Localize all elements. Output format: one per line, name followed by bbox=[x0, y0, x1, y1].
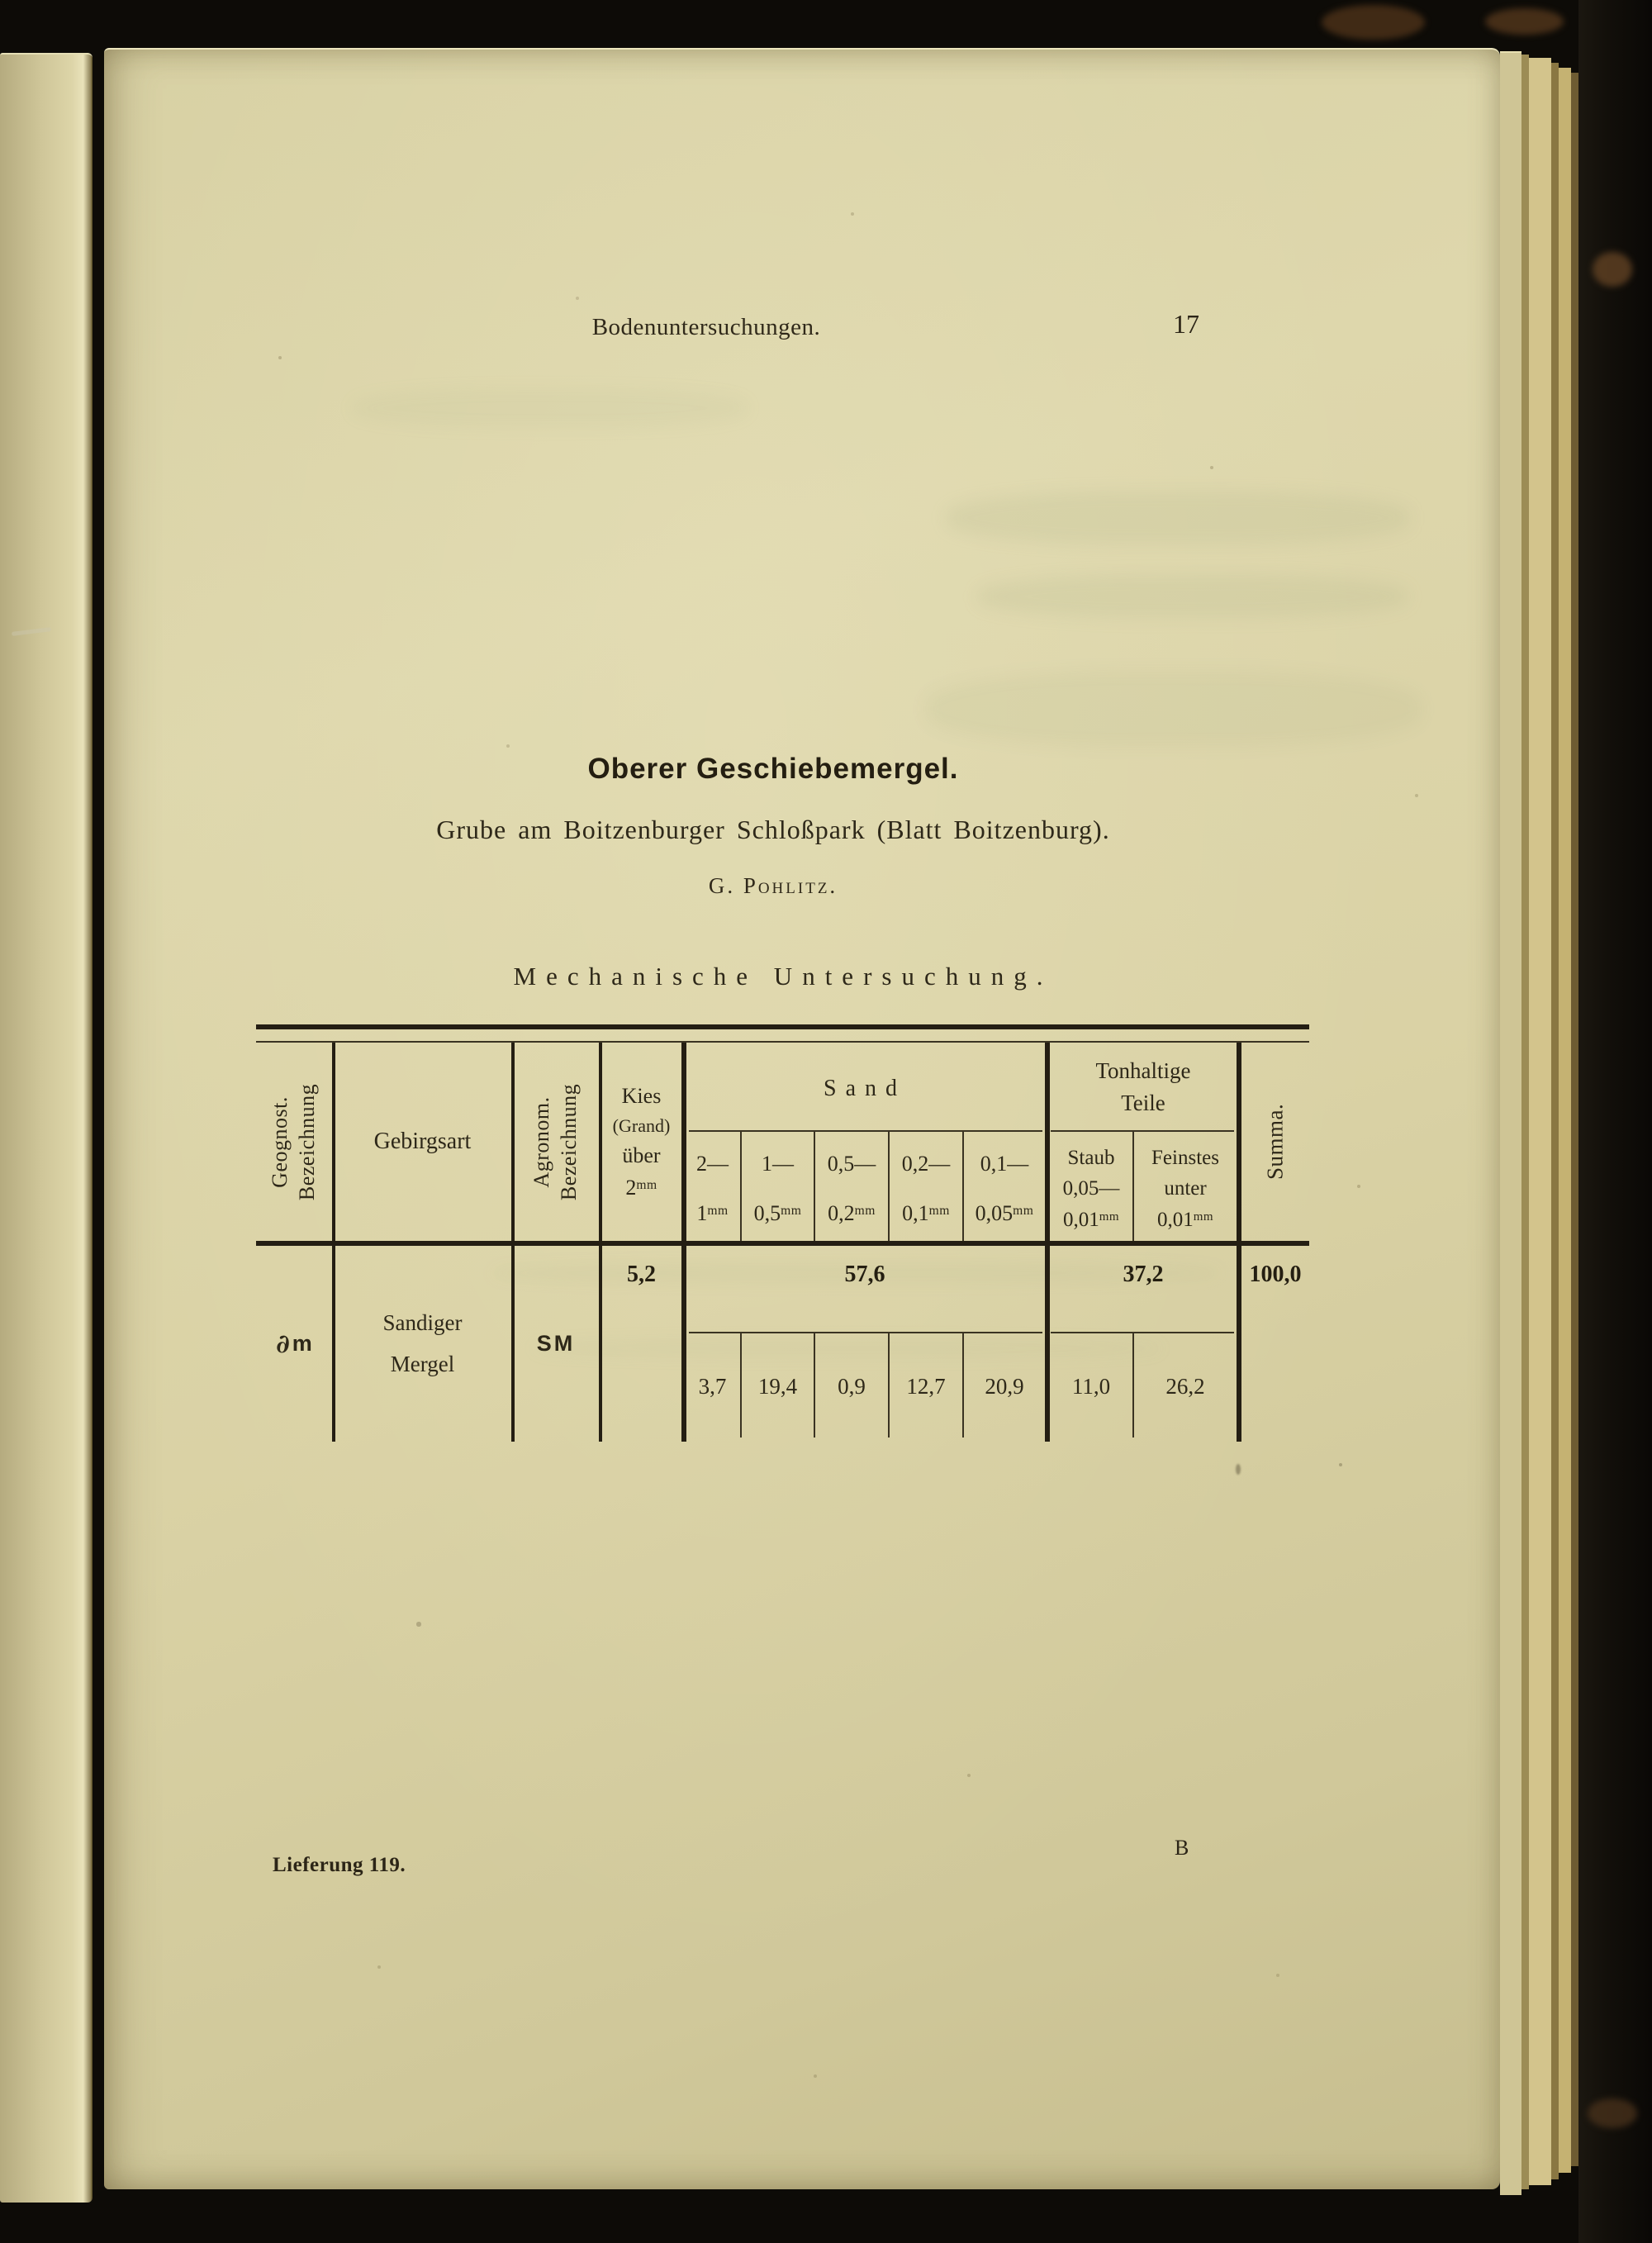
cell-geognost-symbol: ∂m bbox=[256, 1246, 332, 1442]
cell-staub-value: 11,0 bbox=[1051, 1367, 1131, 1405]
range-to: 0,5mm bbox=[754, 1189, 802, 1238]
header-gebirgsart: Gebirgsart bbox=[335, 1043, 510, 1241]
show-through-stain bbox=[947, 492, 1409, 544]
gebirgsart-line2: Mergel bbox=[391, 1344, 454, 1385]
kies-value: 5,2 bbox=[627, 1262, 656, 1288]
book-cover-right bbox=[1578, 0, 1652, 2243]
staub-line1: Staub bbox=[1068, 1143, 1115, 1174]
header-sand-group: Sand bbox=[686, 1062, 1043, 1116]
sand-value: 20,9 bbox=[985, 1374, 1023, 1399]
header-tonhaltige-group: Tonhaltige Teile bbox=[1051, 1051, 1235, 1124]
page-edge-stack bbox=[1521, 55, 1529, 2189]
page-subtitle: Grube am Boitzenburger Schloßpark (Blatt… bbox=[436, 815, 1109, 845]
page-edge-stack bbox=[1529, 58, 1551, 2185]
stray-ink-mark bbox=[1236, 1464, 1241, 1475]
show-through-stain bbox=[978, 575, 1408, 618]
page-number: 17 bbox=[1173, 309, 1199, 340]
leather-damage-spot bbox=[1322, 5, 1425, 40]
feinstes-line3: 0,01mm bbox=[1157, 1205, 1213, 1236]
sand-sub-divider bbox=[814, 1132, 815, 1241]
table-rule-top-thick bbox=[256, 1024, 1309, 1029]
leather-damage-spot bbox=[1588, 2098, 1637, 2128]
page-edge-stack bbox=[1559, 68, 1571, 2173]
paper-specks bbox=[104, 50, 106, 51]
cell-sand-value-2: 19,4 bbox=[743, 1367, 812, 1405]
show-through-stain bbox=[352, 388, 748, 428]
running-header: Bodenuntersuchungen. bbox=[592, 314, 821, 341]
kies-limit-unit: mm bbox=[636, 1178, 657, 1192]
range-from: 0,5— bbox=[828, 1139, 876, 1189]
page-title: Oberer Geschiebemergel. bbox=[587, 753, 958, 786]
range-to: 0,05mm bbox=[976, 1189, 1034, 1238]
cell-ton-total: 37,2 bbox=[1051, 1258, 1235, 1291]
header-ton-line1: Tonhaltige bbox=[1095, 1055, 1190, 1087]
sand-sub-divider bbox=[740, 1132, 742, 1241]
header-kies-line2: (Grand) bbox=[613, 1112, 671, 1139]
summa-value: 100,0 bbox=[1250, 1262, 1302, 1288]
sand-total-value: 57,6 bbox=[845, 1262, 885, 1288]
footer-edition-note: Lieferung 119. bbox=[273, 1854, 406, 1877]
header-summa-label: Summa. bbox=[1261, 1104, 1289, 1180]
header-sand-range-4: 0,2— 0,1mm bbox=[891, 1140, 961, 1238]
header-geognost-line2: Bezeichnung bbox=[294, 1083, 321, 1200]
header-kies: Kies (Grand) über 2mm bbox=[602, 1043, 681, 1241]
staub-value: 11,0 bbox=[1072, 1374, 1110, 1399]
header-geognost: Geognost. Bezeichnung bbox=[256, 1043, 332, 1241]
cell-agronom: SM bbox=[515, 1246, 597, 1442]
book-page: Bodenuntersuchungen. 17 Oberer Geschiebe… bbox=[104, 48, 1500, 2189]
leather-damage-spot bbox=[1485, 8, 1564, 35]
kies-limit-number: 2 bbox=[625, 1176, 636, 1200]
header-staub: Staub 0,05— 0,01mm bbox=[1051, 1138, 1131, 1239]
range-to: 0,2mm bbox=[828, 1189, 876, 1238]
header-ton-line2: Teile bbox=[1121, 1087, 1165, 1119]
header-kies-line3: über bbox=[622, 1139, 660, 1171]
header-kies-line4: 2mm bbox=[625, 1171, 657, 1204]
signature-mark: B bbox=[1175, 1836, 1189, 1860]
ton-group-underline bbox=[1051, 1130, 1234, 1132]
cell-sand-total: 57,6 bbox=[686, 1258, 1043, 1291]
header-sand-range-1: 2— 1mm bbox=[686, 1140, 738, 1238]
gebirgsart-line1: Sandiger bbox=[383, 1303, 463, 1344]
sand-sub-divider bbox=[888, 1332, 890, 1438]
sand-value: 3,7 bbox=[699, 1374, 727, 1399]
ton-sub-divider bbox=[1132, 1132, 1134, 1241]
geology-symbol-partial: ∂ bbox=[276, 1329, 290, 1359]
ton-subtotal-divider bbox=[1051, 1332, 1234, 1333]
sand-sub-divider bbox=[814, 1332, 815, 1438]
mechanical-analysis-table: Geognost. Bezeichnung Gebirgsart Agronom… bbox=[256, 1024, 1309, 1447]
geology-symbol-letter: m bbox=[292, 1331, 312, 1357]
page-edge-stack bbox=[1571, 73, 1578, 2166]
sand-value: 0,9 bbox=[838, 1374, 866, 1399]
ton-total-value: 37,2 bbox=[1123, 1262, 1164, 1288]
sand-group-underline bbox=[689, 1130, 1042, 1132]
author-name: G. Pohlitz. bbox=[709, 873, 838, 899]
facing-page-edge bbox=[0, 53, 93, 2203]
header-agronom-line2: Bezeichnung bbox=[556, 1083, 583, 1200]
header-summa: Summa. bbox=[1241, 1043, 1309, 1241]
feinstes-value: 26,2 bbox=[1165, 1374, 1204, 1399]
cell-sand-value-4: 12,7 bbox=[891, 1367, 961, 1405]
book-photo: { "doc": { "running_header": "Bodenunter… bbox=[0, 0, 1652, 2243]
header-agronom-line1: Agronom. bbox=[529, 1083, 557, 1200]
range-to: 1mm bbox=[696, 1189, 728, 1238]
sand-sub-divider bbox=[740, 1332, 742, 1438]
cell-kies-value: 5,2 bbox=[602, 1258, 681, 1291]
range-from: 2— bbox=[696, 1139, 729, 1189]
staub-line3: 0,01mm bbox=[1063, 1205, 1119, 1236]
cell-sand-value-1: 3,7 bbox=[686, 1367, 738, 1405]
ton-sub-divider bbox=[1132, 1332, 1134, 1438]
header-sand-range-3: 0,5— 0,2mm bbox=[817, 1140, 886, 1238]
page-edge-stack bbox=[1500, 51, 1521, 2195]
leather-damage-spot bbox=[1593, 252, 1632, 287]
sand-subtotal-divider bbox=[689, 1332, 1042, 1333]
sand-sub-divider bbox=[888, 1132, 890, 1241]
cell-sand-value-3: 0,9 bbox=[817, 1367, 886, 1405]
header-agronom: Agronom. Bezeichnung bbox=[515, 1043, 597, 1241]
header-geognost-line1: Geognost. bbox=[268, 1083, 295, 1200]
cell-summa-value: 100,0 bbox=[1241, 1258, 1309, 1291]
col-divider bbox=[1045, 1043, 1050, 1442]
header-feinstes: Feinstes unter 0,01mm bbox=[1136, 1138, 1235, 1239]
staub-line2: 0,05— bbox=[1063, 1173, 1120, 1205]
range-to: 0,1mm bbox=[902, 1189, 950, 1238]
show-through-stain bbox=[926, 671, 1422, 747]
header-sand-range-2: 1— 0,5mm bbox=[743, 1140, 812, 1238]
page-edge-stack bbox=[1551, 63, 1559, 2179]
cell-feinstes-value: 26,2 bbox=[1136, 1367, 1235, 1405]
sand-value: 12,7 bbox=[906, 1374, 945, 1399]
sand-value: 19,4 bbox=[758, 1374, 797, 1399]
sand-sub-divider bbox=[962, 1132, 964, 1241]
header-sand-label: Sand bbox=[824, 1076, 906, 1102]
range-from: 1— bbox=[762, 1139, 794, 1189]
range-from: 0,1— bbox=[980, 1139, 1029, 1189]
feinstes-line1: Feinstes bbox=[1151, 1143, 1219, 1174]
sand-sub-divider bbox=[962, 1332, 964, 1438]
range-from: 0,2— bbox=[902, 1139, 951, 1189]
header-gebirgsart-label: Gebirgsart bbox=[374, 1129, 472, 1155]
section-heading: Mechanische Untersuchung. bbox=[514, 962, 1053, 991]
cell-gebirgsart: Sandiger Mergel bbox=[335, 1246, 510, 1442]
cell-sand-value-5: 20,9 bbox=[966, 1367, 1043, 1405]
header-kies-line1: Kies bbox=[622, 1080, 662, 1112]
agronom-symbol: SM bbox=[537, 1331, 576, 1357]
feinstes-line2: unter bbox=[1164, 1173, 1206, 1205]
header-sand-range-5: 0,1— 0,05mm bbox=[966, 1140, 1043, 1238]
